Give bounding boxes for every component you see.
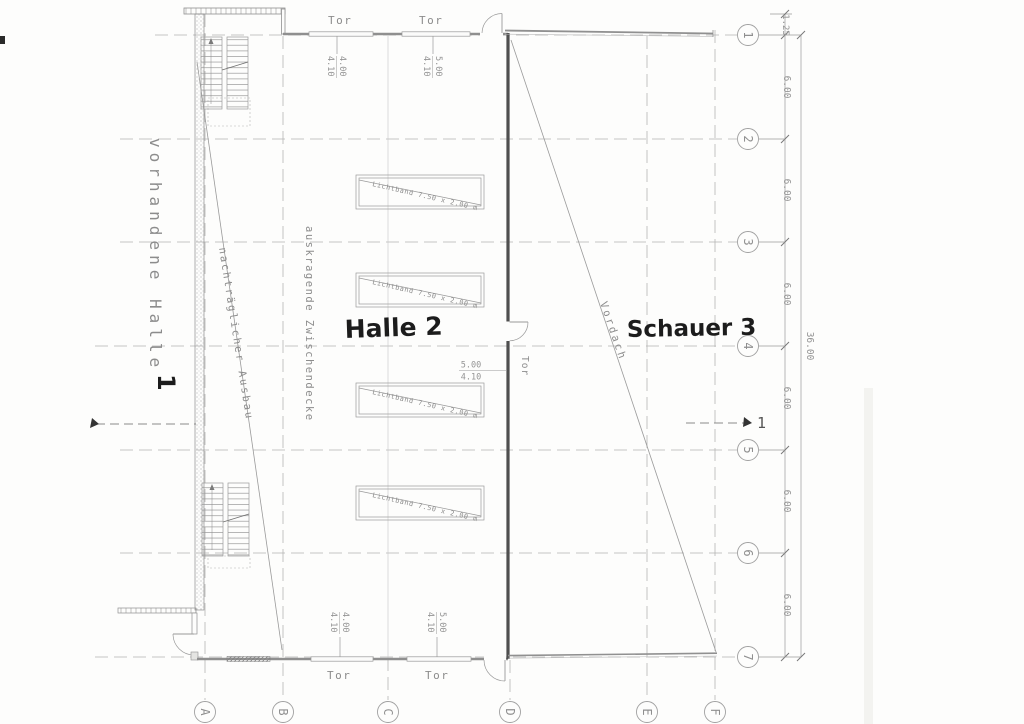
staircase-top-left xyxy=(201,37,250,126)
cantilever-deck-label: auskragende Zwischendecke xyxy=(303,226,315,422)
wall-halle2-vordach xyxy=(506,33,509,659)
section-arrow-left xyxy=(90,418,99,428)
stair-dashed-outline xyxy=(208,556,250,568)
grid-bubble-row-2: 2 xyxy=(738,129,759,150)
gate-dim-mid: 5.00 4.10 xyxy=(459,361,507,383)
dim-value: 5.00 xyxy=(433,56,443,76)
gate-panel-bottom-a xyxy=(311,657,373,661)
skylight-label: Lichtband 7.50 x 2.00 m xyxy=(372,180,479,212)
door-opening-top xyxy=(480,31,503,38)
gate-dim-top-a: 4.00 4.10 xyxy=(325,56,347,78)
grid-bubble-col-C: C xyxy=(378,702,399,723)
dim-offset: 1.25 xyxy=(780,14,790,36)
grid-bubble-label: 1 xyxy=(741,31,755,38)
skylight-1: Lichtband 7.50 x 2.00 m xyxy=(356,175,484,212)
grid-bubble-col-A: A xyxy=(195,702,216,723)
existing-hall-number: 1 xyxy=(152,374,180,391)
door-swing-bottom xyxy=(484,660,505,681)
skylight-3: Lichtband 7.50 x 2.00 m xyxy=(356,383,484,420)
hall2-bottom-wall xyxy=(197,656,508,681)
stair-flight xyxy=(202,483,223,556)
gate-dimensions: 4.00 4.10 5.00 4.10 4.00 4.10 5.00 4.10 … xyxy=(325,36,507,657)
grid-bubble-label: 7 xyxy=(741,653,755,660)
grid-bubble-label: 2 xyxy=(741,135,755,142)
gate-labels: Tor Tor Tor Tor Tor xyxy=(327,14,530,682)
gate-dim-bottom-a: 4.00 4.10 xyxy=(328,612,350,634)
grid-bubble-row-6: 6 xyxy=(738,543,759,564)
skylight-4: Lichtband 7.50 x 2.00 m xyxy=(356,486,484,523)
stair-flight xyxy=(201,37,222,109)
extension-label: nachträglicher Ausbau xyxy=(216,247,255,421)
gate-dim-bottom-b: 5.00 4.10 xyxy=(425,612,447,634)
grid-bubble-col-E: E xyxy=(637,702,658,723)
door-swing-top xyxy=(482,13,502,33)
bottom-left-wall-stub xyxy=(192,613,197,634)
gate-label-top-a: Tor xyxy=(328,14,352,27)
door-swing-mid xyxy=(510,322,528,341)
grid-bubble-col-F: F xyxy=(705,702,726,723)
grid-bubble-label: 6 xyxy=(741,549,755,556)
dim-bay-5: 6.00 xyxy=(781,490,792,513)
floorplan-svg: Lichtband 7.50 x 2.00 m Lichtband 7.50 x… xyxy=(0,0,1024,724)
right-dimension-strip: 1.25 6.00 6.00 6.00 6.00 6.00 6.00 36.00 xyxy=(759,10,815,661)
dim-value: 5.00 xyxy=(461,361,481,371)
canopy-label: Vordach xyxy=(597,300,628,362)
grid-bubble-label: F xyxy=(708,708,722,715)
grid-bubble-row-1: 1 xyxy=(738,25,759,46)
section-number: 1 xyxy=(757,414,766,432)
staircase-mid-left xyxy=(202,483,250,568)
grid-bubble-row-7: 7 xyxy=(738,647,759,668)
gate-label-bottom-b: Tor xyxy=(425,669,449,682)
grid-bubble-label: 4 xyxy=(741,342,755,349)
shed3-label: Schauer 3 xyxy=(627,315,757,343)
wall-step xyxy=(282,9,286,34)
dim-value: 4.00 xyxy=(337,56,347,76)
col-grid-bubbles: A B C D E F xyxy=(195,702,726,723)
section-arrow-right xyxy=(743,417,752,427)
dim-value: 5.00 xyxy=(437,612,447,632)
grid-col-lines xyxy=(205,14,715,700)
dim-bay-4: 6.00 xyxy=(781,387,792,410)
dim-value: 4.10 xyxy=(328,612,338,632)
scanned-floor-plan: Lichtband 7.50 x 2.00 m Lichtband 7.50 x… xyxy=(0,0,1024,724)
grid-bubble-label: 5 xyxy=(741,446,755,453)
row-grid-bubbles: 1 2 3 4 5 6 7 xyxy=(738,25,759,668)
door-opening-bottom xyxy=(484,656,506,663)
grid-row-lines xyxy=(95,35,737,657)
grid-bubble-label: E xyxy=(640,708,654,715)
gate-panel-bottom-b xyxy=(407,657,471,661)
dim-value: 4.10 xyxy=(461,373,481,383)
hall2-top-wall xyxy=(283,13,508,37)
gate-panel-top-a xyxy=(309,32,373,36)
grid-bubble-label: C xyxy=(381,708,395,715)
grid-bubble-row-3: 3 xyxy=(738,232,759,253)
dim-value: 4.10 xyxy=(425,612,435,632)
door-opening-mid xyxy=(506,322,511,342)
grid-bubble-label: D xyxy=(503,708,517,715)
gate-label-bottom-a: Tor xyxy=(327,669,351,682)
gate-label-top-b: Tor xyxy=(419,14,443,27)
existing-hall-label: vorhandene Halle xyxy=(146,138,165,372)
vordach-bottom-edge xyxy=(508,653,717,655)
skylight-label: Lichtband 7.50 x 2.00 m xyxy=(372,491,479,523)
dim-value: 4.10 xyxy=(421,56,431,76)
grid-bubble-label: A xyxy=(198,708,212,716)
grid-bubble-label: B xyxy=(276,708,290,715)
grid-bubble-row-5: 5 xyxy=(738,440,759,461)
vordach-top-edge xyxy=(505,31,713,34)
dim-value: 4.00 xyxy=(340,612,350,632)
skylights: Lichtband 7.50 x 2.00 m Lichtband 7.50 x… xyxy=(356,175,484,523)
dim-total: 36.00 xyxy=(804,332,815,361)
dim-bay-2: 6.00 xyxy=(781,179,792,202)
scan-edge-speck xyxy=(0,36,5,44)
dim-value: 4.10 xyxy=(325,56,335,76)
bottom-left-jog-wall xyxy=(118,608,196,613)
grid-bubble-col-B: B xyxy=(273,702,294,723)
skylight-2: Lichtband 7.50 x 2.00 m xyxy=(356,273,484,310)
hall2-label: Halle 2 xyxy=(344,312,443,344)
dim-bay-3: 6.00 xyxy=(781,283,792,306)
grid-bubble-label: 3 xyxy=(741,238,755,245)
top-left-wall xyxy=(184,8,285,14)
gate-dim-top-b: 5.00 4.10 xyxy=(421,56,443,78)
gate-label-mid-vertical: Tor xyxy=(519,356,530,376)
bottom-wall-hatched-segment xyxy=(227,657,270,662)
grid-bubble-col-D: D xyxy=(500,702,521,723)
dim-bay-6: 6.00 xyxy=(781,594,792,617)
skylight-label: Lichtband 7.50 x 2.00 m xyxy=(372,278,479,310)
scan-artifact-band xyxy=(864,388,873,724)
door-jamb-bottom-left xyxy=(191,652,198,660)
dim-bay-1: 6.00 xyxy=(781,76,792,99)
skylight-label: Lichtband 7.50 x 2.00 m xyxy=(372,388,479,420)
gate-panel-top-b xyxy=(402,32,470,36)
